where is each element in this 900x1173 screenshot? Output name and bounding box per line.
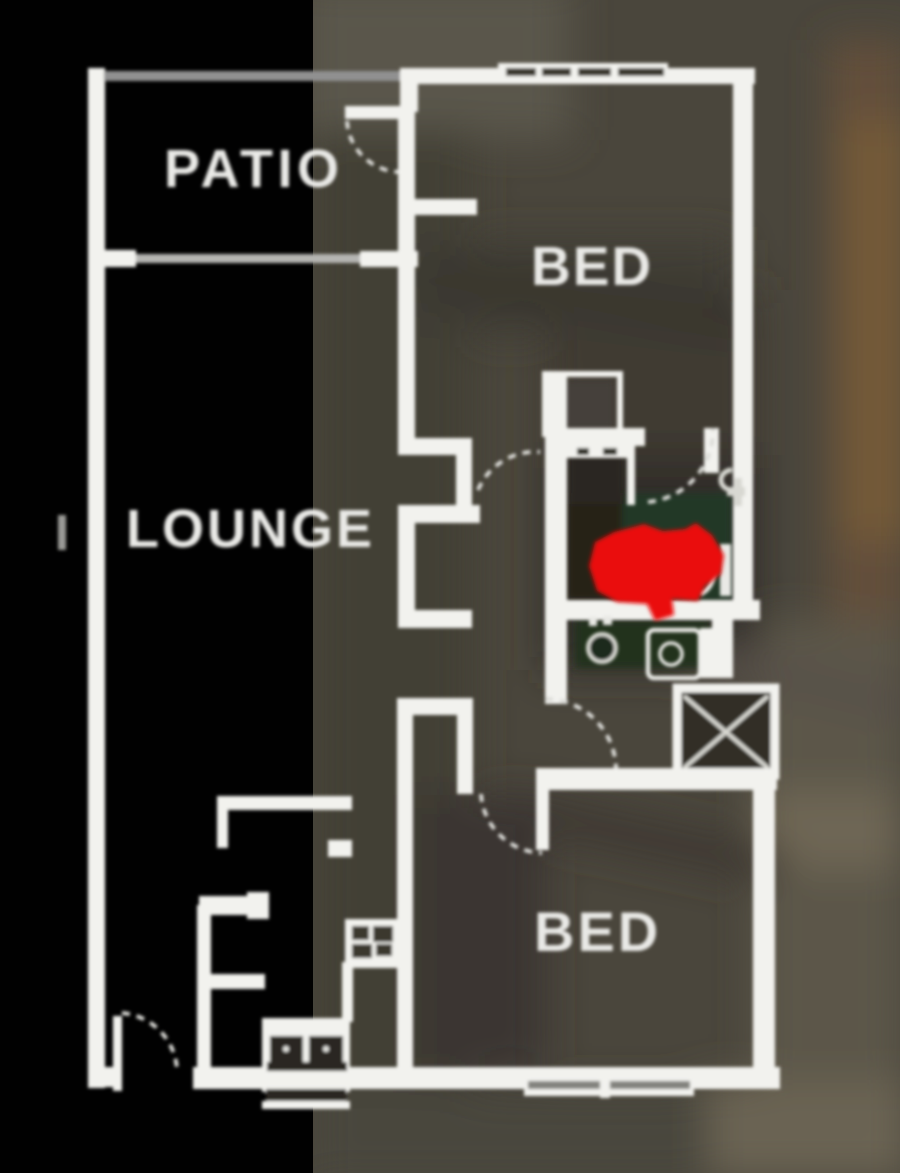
- svg-text:BED: BED: [534, 900, 661, 963]
- svg-text:LOUNGE: LOUNGE: [126, 499, 375, 559]
- svg-text:BED: BED: [531, 235, 653, 297]
- svg-text:PATIO: PATIO: [164, 139, 344, 199]
